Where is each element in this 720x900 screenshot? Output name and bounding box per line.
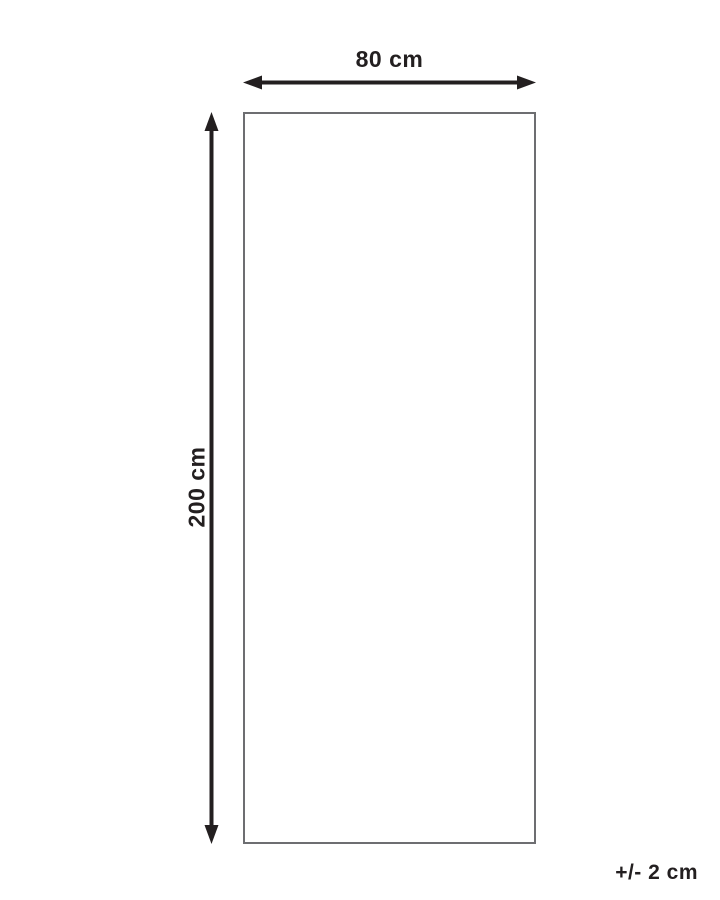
- tolerance-label: +/- 2 cm: [615, 861, 698, 885]
- dimension-diagram-canvas: 80 cm 200 cm +/- 2 cm: [0, 0, 720, 900]
- product-outline: [243, 112, 536, 844]
- width-dimension-arrow-icon: [243, 75, 536, 90]
- width-label: 80 cm: [243, 46, 536, 73]
- height-label: 200 cm: [184, 446, 211, 527]
